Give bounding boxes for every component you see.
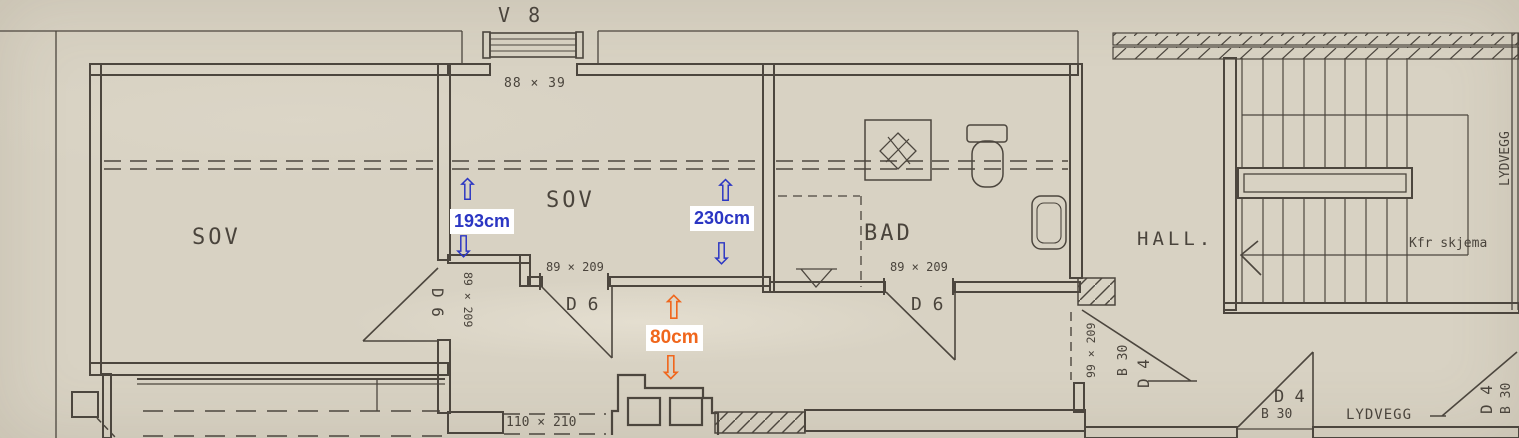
measure-down-arrow-icon: ⇩ [451, 233, 476, 263]
door-label-b30-hall: B 30 [1117, 345, 1130, 376]
door-label-d4-hall: D 4 [1136, 359, 1152, 388]
dimension-89x209-bad: 89 × 209 [890, 261, 948, 273]
note-kfr-skjema: Kfr skjema [1409, 237, 1487, 250]
door-label-d6-bad: D 6 [911, 296, 944, 314]
dimension-99x209-hall: 99 × 209 [1086, 323, 1098, 378]
floor-plan-screenshot: V 8 88 × 39 SOV SOV BAD HALL. Kfr skjema… [0, 0, 1519, 438]
floor-plan-linework [0, 0, 1519, 438]
dimension-89x209-mid: 89 × 209 [546, 261, 604, 273]
measure-down-arrow-icon: ⇩ [709, 240, 734, 270]
door-label-b30-mid: B 30 [1261, 408, 1292, 421]
door-label-d6-left: D 6 [429, 288, 445, 317]
lydvegg-label-vertical: LYDVEGG [1499, 131, 1512, 186]
room-label-sov-left: SOV [192, 227, 241, 249]
room-label-sov-mid: SOV [546, 190, 595, 212]
window-dimension: 88 × 39 [504, 77, 566, 90]
door-label-d6-mid: D 6 [566, 296, 599, 314]
door-label-d4-mid: D 4 [1274, 389, 1305, 406]
measurement-label-80cm[interactable]: 80cm [646, 325, 703, 351]
door-label-b30-right: B 30 [1500, 383, 1513, 414]
lydvegg-label-horizontal: LYDVEGG [1346, 408, 1412, 422]
window-label: V 8 [498, 5, 543, 25]
dimension-110x210-lower: 110 × 210 [506, 416, 576, 429]
measurement-label-230cm[interactable]: 230cm [690, 206, 754, 231]
room-label-hall: HALL. [1137, 230, 1214, 249]
measure-down-arrow-icon: ⇩ [657, 351, 685, 384]
dimension-89x209-left: 89 × 209 [462, 272, 474, 327]
measure-up-arrow-icon: ⇧ [660, 291, 688, 324]
measure-up-arrow-icon: ⇧ [713, 177, 738, 207]
door-label-d4-right: D 4 [1479, 385, 1495, 414]
measure-up-arrow-icon: ⇧ [455, 176, 480, 206]
room-label-bad: BAD [864, 223, 913, 245]
